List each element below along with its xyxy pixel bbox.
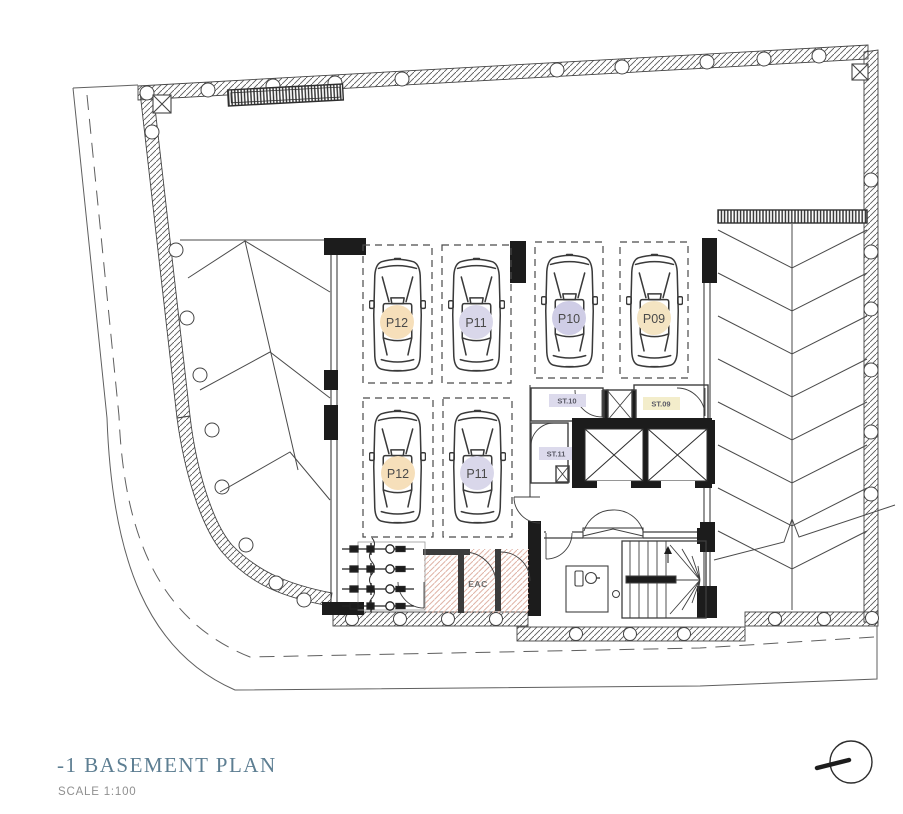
stall-label-p11-bottom: P11 — [466, 467, 487, 481]
stair-handrail — [626, 576, 676, 583]
stall-label-p12-bottom: P12 — [387, 467, 409, 481]
stair-direction-arrow — [664, 546, 672, 563]
stall-label-p12-top: P12 — [386, 316, 408, 330]
meter-bank — [342, 538, 425, 612]
stall-label-p11-top: P11 — [465, 316, 486, 330]
scale-label: SCALE 1:100 — [58, 786, 137, 798]
stall-label-p10: P10 — [558, 312, 580, 326]
basement-plan-page: P12 P11 P10 P09 P12 P11 ST.10 ST.09 ST.1… — [0, 0, 903, 814]
floor-plan-svg: P12 P11 P10 P09 P12 P11 ST.10 ST.09 ST.1… — [0, 0, 903, 814]
elevator-door-gap — [597, 481, 631, 489]
room-label-st09: ST.09 — [651, 400, 670, 409]
meter-rows — [342, 543, 414, 612]
elevator-door-gap — [661, 481, 695, 489]
eac-room: EAC — [398, 549, 530, 613]
elevator-block — [572, 418, 712, 489]
room-label-eac: EAC — [468, 579, 487, 589]
room-label-st10: ST.10 — [557, 397, 576, 406]
north-indicator-icon — [817, 741, 872, 783]
page-title: -1 BASEMENT PLAN — [57, 753, 277, 777]
title-block: -1 BASEMENT PLAN SCALE 1:100 — [57, 753, 277, 798]
stall-label-p09: P09 — [643, 312, 665, 326]
stair-block — [514, 497, 706, 618]
room-label-st11: ST.11 — [547, 450, 566, 459]
ventilation-grille-ramp — [718, 210, 867, 223]
wc-room — [566, 566, 608, 612]
